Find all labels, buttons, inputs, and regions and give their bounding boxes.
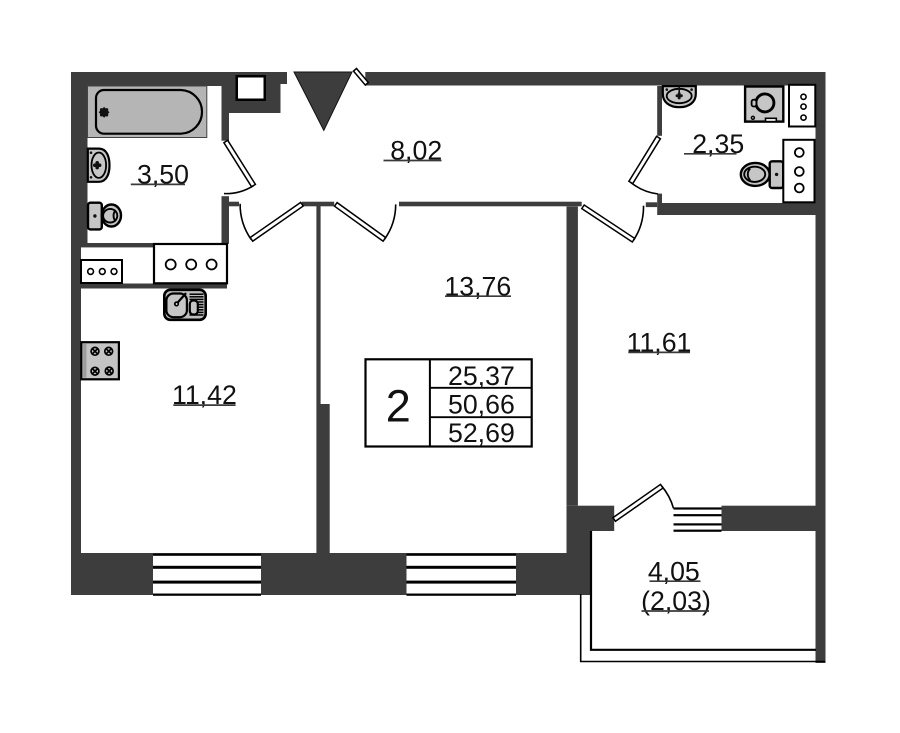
svg-text:25,37: 25,37 (448, 361, 515, 391)
svg-text:2: 2 (386, 380, 411, 431)
svg-text:50,66: 50,66 (448, 390, 515, 420)
svg-text:52,69: 52,69 (448, 418, 515, 448)
